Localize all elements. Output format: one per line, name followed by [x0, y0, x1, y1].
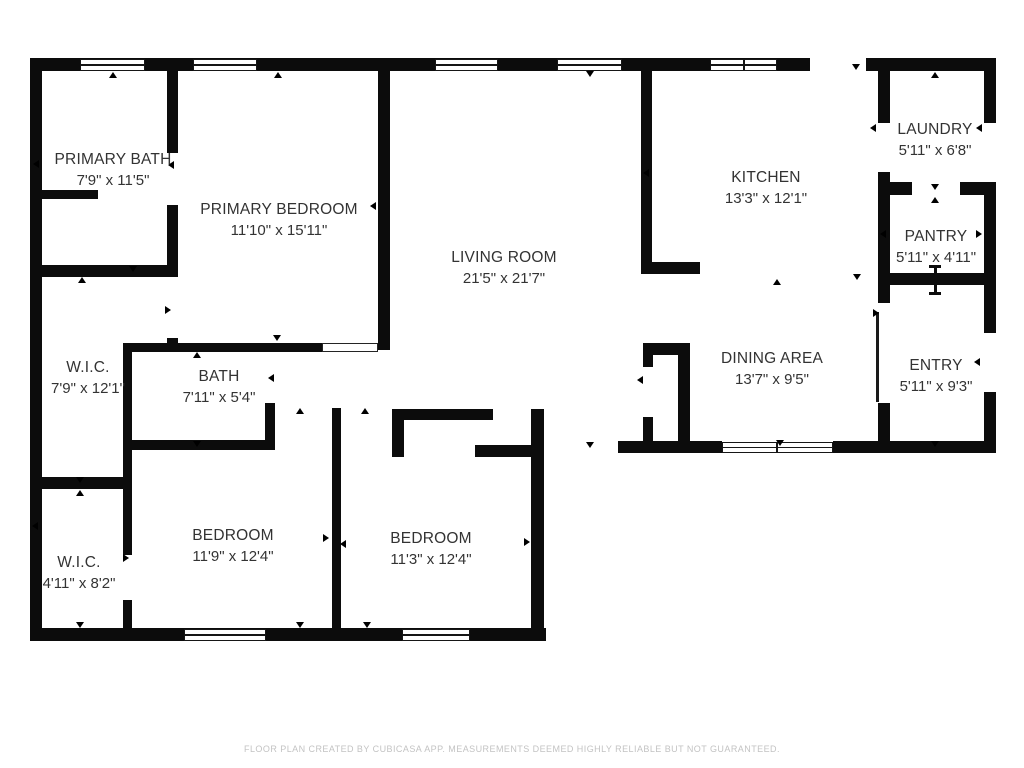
window-pane-line [778, 447, 832, 449]
threshold-marker [934, 266, 937, 294]
direction-marker-icon [976, 230, 982, 238]
wall [30, 265, 178, 277]
direction-marker-icon [78, 277, 86, 283]
room-name: DINING AREA [721, 348, 823, 369]
direction-marker-icon [76, 490, 84, 496]
window-pane-line [185, 634, 265, 636]
room-label: PRIMARY BATH7'9" x 11'5" [55, 149, 172, 191]
room-name: PRIMARY BATH [55, 149, 172, 170]
wall [618, 441, 722, 453]
window [193, 59, 257, 71]
direction-marker-icon [370, 202, 376, 210]
direction-marker-icon [109, 72, 117, 78]
door-leaf [876, 312, 879, 402]
direction-marker-icon [643, 169, 649, 177]
wall [878, 182, 912, 195]
room-dimensions: 13'3" x 12'1" [725, 188, 807, 209]
direction-marker-icon [363, 622, 371, 628]
wall [332, 408, 341, 641]
wall [378, 58, 390, 350]
window-pane-line [194, 64, 256, 66]
direction-marker-icon [361, 408, 369, 414]
room-label: BEDROOM11'3" x 12'4" [390, 528, 472, 570]
direction-marker-icon [524, 538, 530, 546]
wall [123, 600, 132, 641]
wall [984, 58, 996, 123]
direction-marker-icon [268, 374, 274, 382]
direction-marker-icon [974, 358, 980, 366]
floor-plan-canvas: FLOOR PLAN CREATED BY CUBICASA APP. MEAS… [0, 0, 1024, 768]
room-dimensions: 11'3" x 12'4" [390, 549, 472, 570]
direction-marker-icon [193, 352, 201, 358]
wall [123, 343, 322, 352]
room-name: BEDROOM [192, 525, 274, 546]
room-name: LIVING ROOM [451, 247, 557, 268]
room-dimensions: 11'10" x 15'11" [200, 220, 357, 241]
wall [960, 182, 996, 195]
room-name: LAUNDRY [897, 119, 972, 140]
wall [984, 185, 996, 333]
wall [866, 58, 996, 71]
window [80, 59, 145, 71]
wall [392, 420, 404, 457]
direction-marker-icon [976, 124, 982, 132]
direction-marker-icon [853, 274, 861, 280]
room-label: W.I.C.4'11" x 8'2" [43, 552, 116, 594]
disclaimer-text: FLOOR PLAN CREATED BY CUBICASA APP. MEAS… [0, 744, 1024, 754]
room-dimensions: 7'9" x 11'5" [55, 170, 172, 191]
direction-marker-icon [880, 230, 886, 238]
window-pane-line [81, 64, 144, 66]
direction-marker-icon [274, 72, 282, 78]
direction-marker-icon [852, 64, 860, 70]
wall [678, 343, 690, 453]
room-label: LIVING ROOM21'5" x 21'7" [451, 247, 557, 289]
direction-marker-icon [193, 441, 201, 447]
window [777, 442, 833, 453]
direction-marker-icon [776, 440, 784, 446]
wall [475, 445, 531, 457]
direction-marker-icon [273, 335, 281, 341]
direction-marker-icon [586, 71, 594, 77]
room-label: PRIMARY BEDROOM11'10" x 15'11" [200, 199, 357, 241]
window-pane-line [436, 64, 497, 66]
room-label: LAUNDRY5'11" x 6'8" [897, 119, 972, 161]
wall [167, 58, 178, 153]
direction-marker-icon [76, 477, 84, 483]
direction-marker-icon [76, 622, 84, 628]
room-dimensions: 5'11" x 6'8" [897, 140, 972, 161]
wall [30, 58, 42, 641]
wall [30, 190, 98, 199]
direction-marker-icon [637, 376, 643, 384]
direction-marker-icon [32, 522, 38, 530]
wall [641, 58, 652, 274]
room-label: KITCHEN13'3" x 12'1" [725, 167, 807, 209]
room-dimensions: 5'11" x 9'3" [900, 376, 973, 397]
window-pane-line [711, 64, 743, 66]
wall [531, 409, 544, 641]
window [402, 629, 470, 641]
wall [641, 262, 700, 274]
room-label: W.I.C.7'9" x 12'1" [51, 357, 125, 399]
window [435, 59, 498, 71]
room-name: KITCHEN [725, 167, 807, 188]
room-label: BEDROOM11'9" x 12'4" [192, 525, 274, 567]
direction-marker-icon [123, 554, 129, 562]
room-name: PRIMARY BEDROOM [200, 199, 357, 220]
window [722, 442, 777, 453]
direction-marker-icon [931, 184, 939, 190]
window-pane-line [558, 64, 621, 66]
wall [30, 58, 810, 71]
room-dimensions: 13'7" x 9'5" [721, 369, 823, 390]
window [744, 59, 777, 71]
wall [643, 343, 653, 367]
room-name: ENTRY [900, 355, 973, 376]
direction-marker-icon [296, 622, 304, 628]
cased-opening [322, 343, 378, 352]
wall [878, 403, 890, 453]
direction-marker-icon [296, 408, 304, 414]
room-label: ENTRY5'11" x 9'3" [900, 355, 973, 397]
room-dimensions: 4'11" x 8'2" [43, 573, 116, 594]
room-name: BATH [183, 366, 256, 387]
direction-marker-icon [165, 306, 171, 314]
direction-marker-icon [340, 540, 346, 548]
window [557, 59, 622, 71]
room-dimensions: 7'9" x 12'1" [51, 378, 125, 399]
direction-marker-icon [873, 309, 879, 317]
window [710, 59, 744, 71]
window-pane-line [403, 634, 469, 636]
window [184, 629, 266, 641]
room-name: W.I.C. [51, 357, 125, 378]
room-dimensions: 7'11" x 5'4" [183, 387, 256, 408]
direction-marker-icon [586, 442, 594, 448]
direction-marker-icon [323, 534, 329, 542]
direction-marker-icon [773, 279, 781, 285]
room-dimensions: 21'5" x 21'7" [451, 268, 557, 289]
wall [392, 409, 493, 420]
direction-marker-icon [129, 266, 137, 272]
direction-marker-icon [931, 72, 939, 78]
room-name: BEDROOM [390, 528, 472, 549]
room-name: W.I.C. [43, 552, 116, 573]
room-name: PANTRY [896, 226, 976, 247]
wall [643, 417, 653, 453]
direction-marker-icon [33, 160, 39, 168]
direction-marker-icon [931, 197, 939, 203]
window-pane-line [723, 447, 776, 449]
room-dimensions: 11'9" x 12'4" [192, 546, 274, 567]
wall [833, 441, 996, 453]
room-label: BATH7'11" x 5'4" [183, 366, 256, 408]
room-dimensions: 5'11" x 4'11" [896, 247, 976, 268]
wall [878, 71, 890, 123]
direction-marker-icon [870, 124, 876, 132]
room-label: PANTRY5'11" x 4'11" [896, 226, 976, 268]
room-label: DINING AREA13'7" x 9'5" [721, 348, 823, 390]
wall [878, 273, 996, 285]
window-pane-line [745, 64, 776, 66]
threshold-marker-cap [929, 292, 941, 295]
direction-marker-icon [931, 441, 939, 447]
